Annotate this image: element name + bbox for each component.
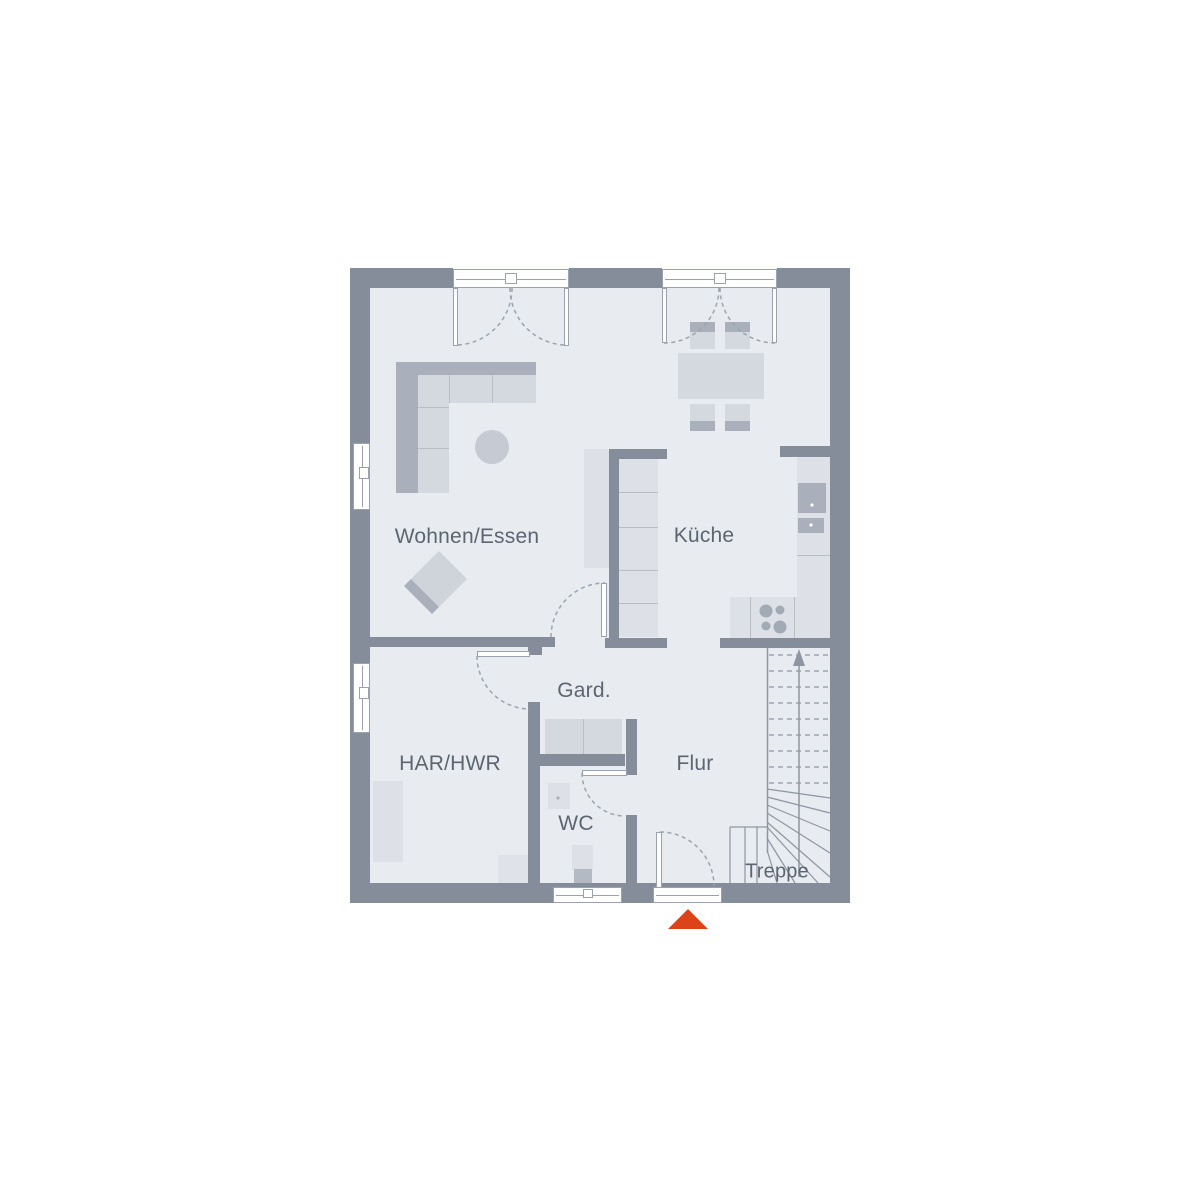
- wall-left: [350, 733, 370, 883]
- wall-counter-stub: [780, 446, 830, 457]
- door-leaf-entrance: [656, 832, 662, 888]
- wall-utility-stub: [528, 646, 542, 655]
- chair-backrest: [725, 421, 750, 431]
- wall-bottom: [722, 883, 850, 903]
- room-label-flur: Flur: [677, 752, 714, 776]
- cabinet-seam: [619, 603, 658, 604]
- wc-sink: [548, 783, 570, 809]
- wc-toilet-tank: [574, 869, 592, 883]
- chair-backrest: [725, 322, 750, 332]
- wall-top: [777, 268, 850, 288]
- room-label-wohnen-essen: Wohnen/Essen: [395, 525, 539, 549]
- kitchen-tall-cabinet: [619, 459, 658, 637]
- living-sideboard: [584, 449, 609, 568]
- sofa-seam: [492, 375, 493, 403]
- entrance-arrow-icon: [668, 909, 708, 929]
- french-door-leaf: [662, 288, 667, 343]
- wall-utility-wc: [528, 702, 540, 883]
- coffee-table: [475, 430, 509, 464]
- window-handle-icon: [359, 467, 369, 479]
- counter-seam: [794, 597, 795, 640]
- washing-machine: [373, 781, 403, 862]
- wall-left: [350, 510, 370, 663]
- window-handle-icon: [714, 273, 726, 284]
- counter-seam: [750, 597, 751, 640]
- room-label-treppe: Treppe: [745, 861, 809, 884]
- sofa-seam: [418, 448, 449, 449]
- sofa-seam: [449, 375, 450, 403]
- wall-bottom: [622, 883, 653, 903]
- floorplan-canvas: Wohnen/Essen Küche Gard. HAR/HWR Flur WC…: [0, 0, 1200, 1200]
- window-handle-icon: [505, 273, 517, 284]
- wc-toilet: [572, 845, 593, 870]
- door-leaf-utility: [477, 651, 530, 657]
- bench-seam: [583, 719, 584, 755]
- sofa-backrest-left: [396, 362, 418, 493]
- cabinet-seam: [619, 570, 658, 571]
- chair-backrest: [690, 421, 715, 431]
- chair-backrest: [690, 322, 715, 332]
- dining-chair: [725, 322, 750, 349]
- wall-left: [350, 288, 370, 443]
- french-door-leaf: [453, 288, 458, 346]
- door-leaf-wc: [582, 770, 627, 776]
- dining-chair: [690, 404, 715, 431]
- cabinet-seam: [619, 492, 658, 493]
- french-door-leaf: [772, 288, 777, 343]
- oven: [798, 483, 826, 513]
- door-leaf-living-hall: [601, 583, 607, 637]
- wall-top: [350, 268, 453, 288]
- room-label-kueche: Küche: [674, 524, 735, 548]
- window-handle-icon: [583, 889, 593, 898]
- wall-top: [569, 268, 662, 288]
- sofa-seam: [418, 407, 449, 408]
- dining-chair: [725, 404, 750, 431]
- cooktop-counter: [730, 597, 830, 640]
- room-label-har-hwr: HAR/HWR: [399, 752, 501, 776]
- entrance-threshold: [653, 887, 722, 903]
- wall-wc-east: [626, 815, 637, 883]
- room-label-gard: Gard.: [557, 679, 611, 703]
- sofa-seats-vertical: [418, 375, 449, 493]
- window-handle-icon: [359, 687, 369, 699]
- microwave: [798, 518, 824, 533]
- dining-chair: [690, 322, 715, 349]
- wall-kitchen-south: [605, 638, 667, 648]
- wall-wc-east: [626, 719, 637, 775]
- wall-right: [830, 288, 850, 903]
- wall-living-kitchen: [609, 449, 619, 648]
- wall-wc-north: [528, 754, 625, 766]
- cabinet-seam: [619, 527, 658, 528]
- wall-bottom: [350, 883, 553, 903]
- counter-seam: [797, 555, 830, 556]
- french-door-leaf: [564, 288, 569, 346]
- dining-table: [678, 353, 764, 399]
- wall-living-kitchen-stub: [609, 449, 667, 459]
- room-label-wc: WC: [558, 812, 593, 836]
- wall-kitchen-south: [720, 638, 830, 648]
